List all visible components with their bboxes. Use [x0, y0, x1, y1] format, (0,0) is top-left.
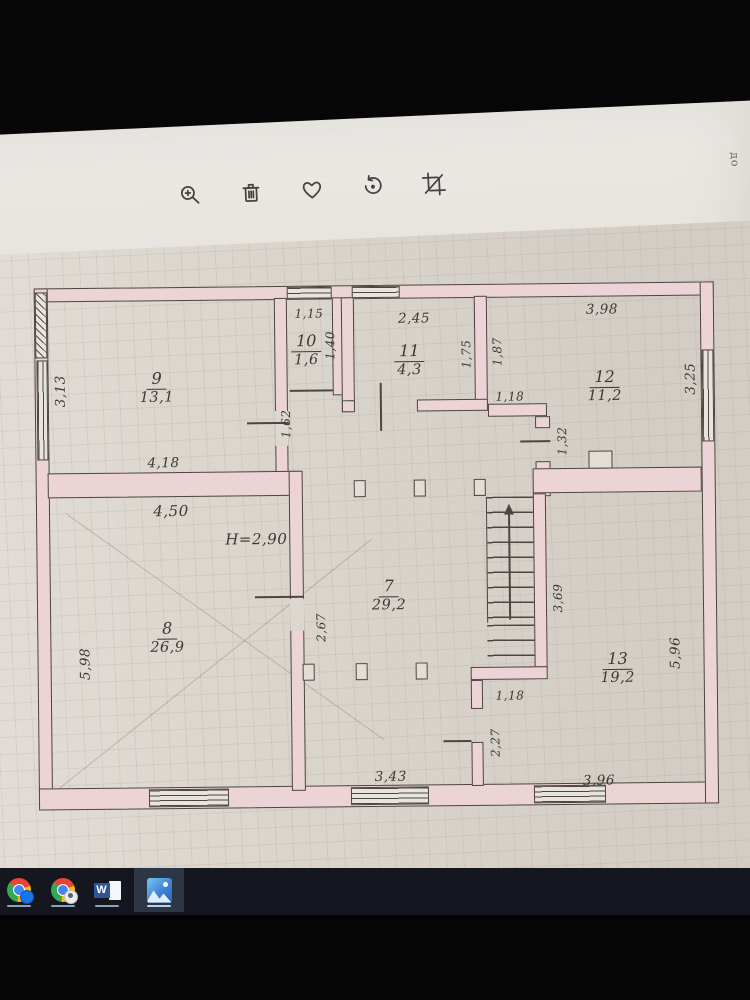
dimension-label: 1,15 [295, 307, 324, 321]
pillar [416, 662, 428, 679]
photos-sun [163, 882, 168, 887]
chrome-badge-icon [20, 890, 34, 904]
dimension-label: 3,25 [682, 363, 698, 395]
wall [471, 680, 483, 709]
door-swing-line [290, 389, 333, 391]
taskbar-word[interactable]: W [90, 868, 124, 912]
room-number: 7 [379, 576, 399, 597]
room-number: 9 [146, 369, 166, 390]
pillar [303, 664, 315, 681]
wall-hatch [35, 292, 48, 358]
taskbar-photos[interactable] [134, 868, 184, 912]
room-area: 1,6 [291, 352, 322, 368]
word-page [109, 881, 121, 900]
room-number: 11 [394, 341, 425, 362]
door-opening [290, 599, 304, 631]
room-area: 13,1 [140, 390, 174, 406]
word-icon: W [94, 879, 121, 902]
dimension-label: 3,96 [583, 772, 615, 788]
dimension-label: 2,27 [488, 728, 502, 757]
zoom-in-icon [177, 181, 204, 208]
running-indicator [147, 905, 171, 908]
taskbar-chrome[interactable] [2, 868, 36, 912]
wall [535, 416, 550, 428]
dimension-label: 3,13 [53, 375, 69, 407]
pillar [356, 663, 368, 680]
wall [417, 399, 488, 412]
room-area: 4,3 [394, 362, 425, 378]
dimension-label: 1,62 [279, 409, 293, 438]
rotate-icon [359, 173, 386, 200]
dimension-label: 1,40 [323, 331, 337, 360]
pillar [414, 479, 426, 496]
wall [533, 493, 548, 668]
pillar [354, 480, 366, 497]
monitor-screen: до [0, 99, 750, 936]
dimension-label: 5,96 [667, 637, 683, 669]
room-number: 10 [291, 331, 322, 352]
dimension-label: 5,98 [77, 648, 93, 680]
wall [342, 400, 355, 412]
window [701, 349, 714, 441]
wall [274, 298, 289, 496]
height-note: H=2,90 [225, 530, 287, 549]
dimension-label: 1,87 [490, 337, 504, 366]
dimension-label: 4,50 [153, 502, 189, 520]
room-label: 10 1,6 [291, 331, 322, 368]
window [36, 360, 48, 460]
room-label: 13 19,2 [600, 649, 635, 686]
room-area: 29,2 [372, 597, 406, 613]
dimension-label: 3,69 [551, 584, 565, 613]
door-swing-line [380, 383, 382, 431]
taskbar: W [0, 868, 750, 915]
dimension-label: 3,98 [586, 301, 618, 317]
wall [533, 467, 702, 494]
window [149, 789, 229, 808]
room-label: 7 29,2 [372, 576, 407, 613]
pillar [474, 479, 486, 496]
zoom-in-button[interactable] [176, 181, 205, 210]
photos-icon [147, 878, 172, 903]
chrome-profile-icon [51, 878, 75, 902]
wall [488, 403, 547, 417]
dimension-label: 1,75 [459, 340, 473, 369]
crop-button[interactable] [419, 170, 448, 199]
running-indicator [7, 905, 31, 908]
wall [341, 297, 355, 412]
room-label: 8 26,9 [150, 618, 185, 655]
floor-plan-photo: 9 13,1 10 1,6 11 4,3 12 11,2 7 29,2 8 26… [0, 219, 750, 926]
pillar [588, 450, 612, 468]
dimension-label: 4,18 [147, 455, 179, 471]
running-indicator [95, 905, 119, 908]
room-label: 9 13,1 [139, 369, 174, 406]
corner-handwriting: до [728, 152, 742, 168]
door-swing-line [443, 740, 471, 742]
profile-badge-icon [64, 890, 78, 904]
room-area: 26,9 [150, 639, 184, 655]
dimension-label: 3,43 [375, 769, 407, 785]
heart-icon [298, 176, 325, 203]
room-label: 11 4,3 [394, 341, 425, 378]
window [352, 286, 400, 299]
room-number: 8 [157, 619, 177, 640]
dimension-label: 1,18 [495, 389, 524, 403]
window [287, 286, 332, 298]
wall [474, 296, 488, 411]
room-area: 11,2 [588, 388, 622, 404]
crop-icon [420, 170, 447, 197]
room-number: 13 [602, 649, 633, 670]
stair-direction-arrow [504, 504, 514, 515]
staircase [487, 624, 534, 668]
floor-plan: 9 13,1 10 1,6 11 4,3 12 11,2 7 29,2 8 26… [34, 281, 719, 816]
room-area: 19,2 [601, 670, 635, 686]
photos-mountains [147, 888, 172, 903]
dimension-label: 1,18 [496, 688, 525, 702]
window [351, 786, 429, 805]
paper-crease [59, 539, 372, 789]
word-w: W [94, 883, 110, 898]
dimension-label: 2,45 [398, 310, 430, 326]
running-indicator [51, 905, 75, 908]
chrome-icon [7, 878, 31, 902]
dimension-label: 1,32 [555, 427, 569, 456]
monitor-bottom: W [0, 868, 750, 1000]
door-swing-line [520, 440, 550, 442]
photo-viewer-toolbar [176, 170, 449, 210]
wall [48, 471, 301, 499]
taskbar-chrome-profile[interactable] [46, 868, 80, 912]
room-label: 12 11,2 [587, 367, 622, 404]
favorite-button[interactable] [297, 176, 326, 205]
delete-button[interactable] [237, 179, 266, 208]
room-number: 12 [589, 367, 620, 388]
wall [471, 742, 483, 786]
dimension-label: 2,67 [314, 613, 328, 642]
rotate-button[interactable] [358, 173, 387, 202]
trash-icon [238, 179, 265, 206]
